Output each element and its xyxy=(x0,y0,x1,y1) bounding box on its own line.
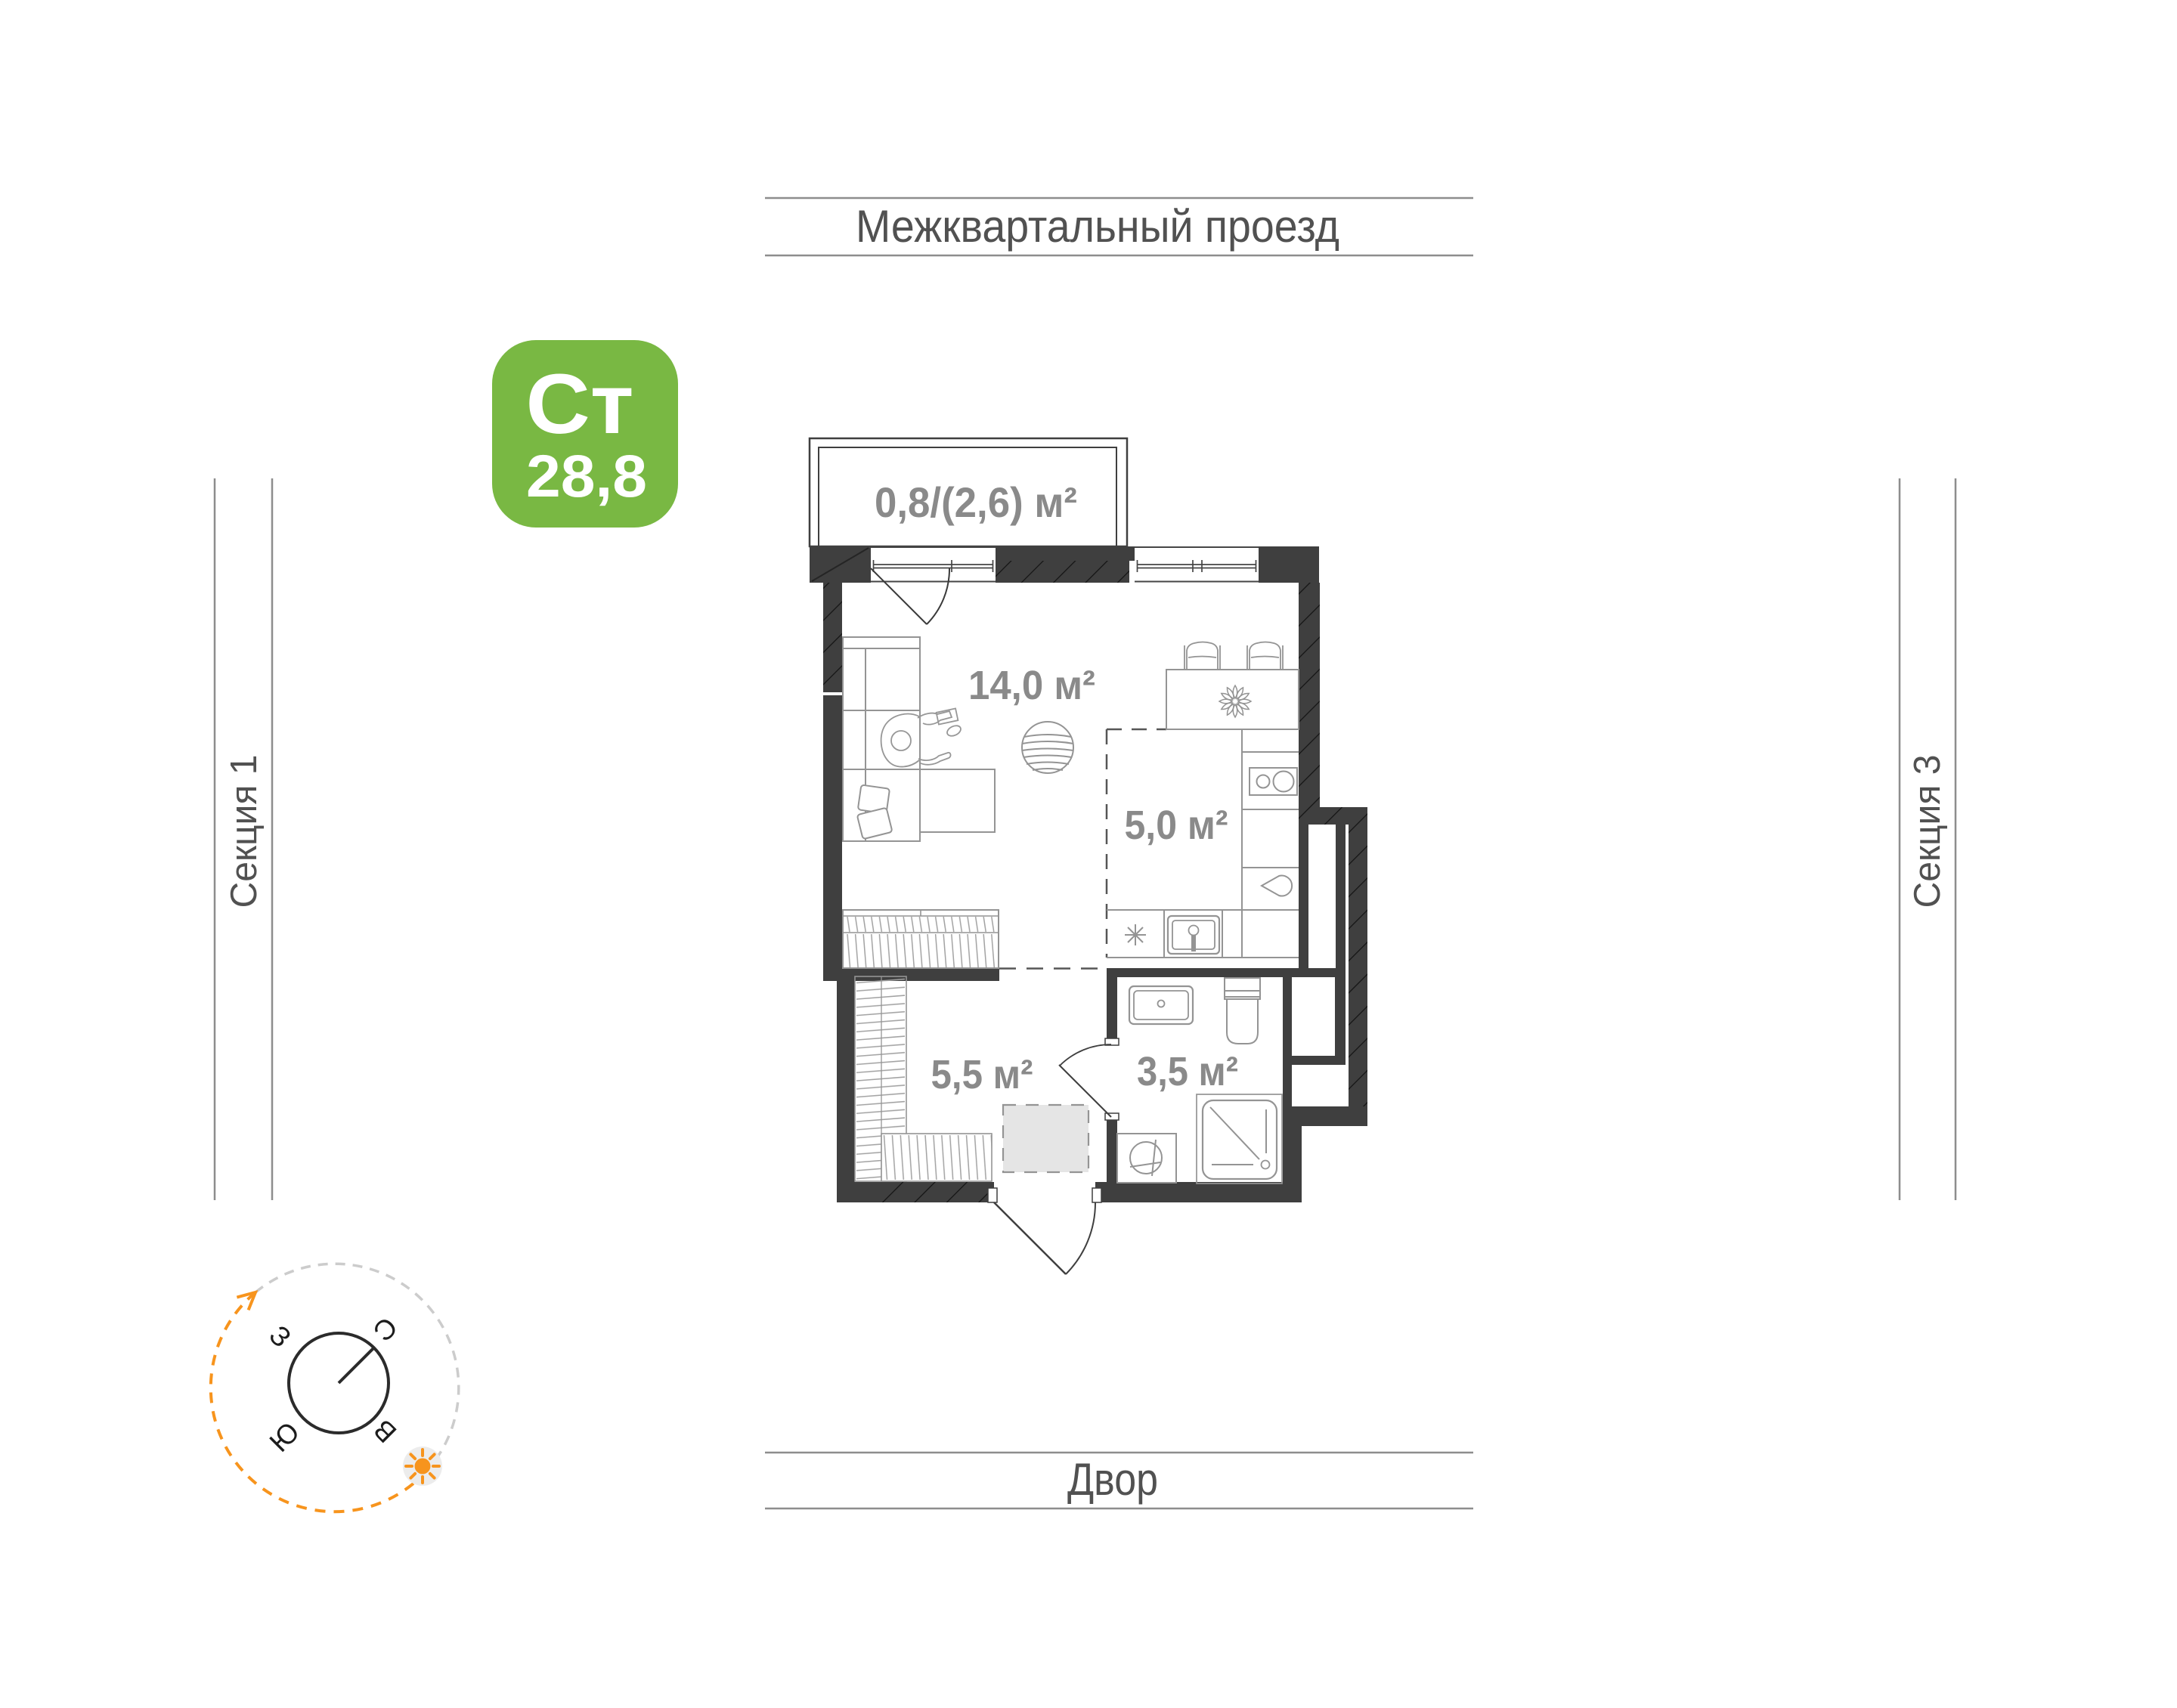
svg-text:Секция 3: Секция 3 xyxy=(1907,755,1948,908)
svg-text:Двор: Двор xyxy=(1067,1454,1158,1505)
svg-text:Межквартальный проезд: Межквартальный проезд xyxy=(856,201,1339,252)
svg-text:0,8/(2,6) м²: 0,8/(2,6) м² xyxy=(875,478,1077,526)
svg-text:5,5 м²: 5,5 м² xyxy=(931,1052,1033,1097)
svg-text:14,0 м²: 14,0 м² xyxy=(968,663,1095,708)
svg-text:Секция 1: Секция 1 xyxy=(224,755,265,908)
svg-text:Ст: Ст xyxy=(526,357,634,451)
svg-text:3,5 м²: 3,5 м² xyxy=(1137,1049,1238,1094)
svg-text:28,8: 28,8 xyxy=(526,442,647,509)
svg-text:5,0 м²: 5,0 м² xyxy=(1125,803,1228,848)
